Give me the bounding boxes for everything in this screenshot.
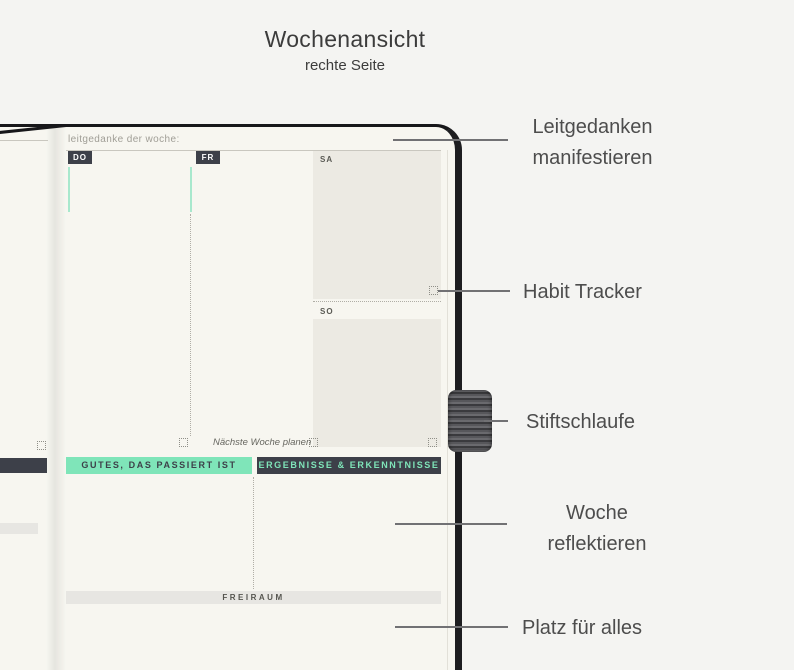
callout-label-stiftschlaufe: Stiftschlaufe: [526, 407, 635, 438]
day-badge-fr: FR: [196, 151, 220, 164]
left-page-header-line: [0, 140, 48, 141]
callout-line-woche-reflektieren: [395, 523, 507, 525]
banner-freiraum: FREIRAUM: [66, 591, 441, 604]
spine-crease: [46, 128, 66, 670]
saturday-block: [313, 151, 441, 299]
fr-column-rule: [190, 167, 192, 212]
habit-tracker-checkbox-icon: [429, 286, 438, 295]
callout-label-platz-fuer-alles: Platz für alles: [522, 613, 642, 644]
callout-label-woche-reflektieren: Woche reflektieren: [527, 498, 667, 560]
callout-line-platz-fuer-alles: [395, 626, 508, 628]
left-page-freiraum-partial: [0, 523, 38, 534]
annotated-planner-diagram: Wochenansicht rechte Seite leitgedanke d…: [0, 0, 794, 670]
fr-column-dotted-rule: [190, 214, 191, 436]
callout-label-leitgedanken: Leitgedanken manifestieren: [510, 112, 675, 174]
diagram-title-block: Wochenansicht rechte Seite: [145, 26, 545, 74]
left-page-banner-partial: [0, 458, 47, 473]
day-label-sa: SA: [320, 155, 333, 164]
leitgedanke-header-label: leitgedanke der woche:: [68, 134, 180, 145]
day-label-so: SO: [320, 307, 334, 316]
checkbox-icon: [179, 438, 188, 447]
sa-so-divider: [313, 301, 441, 302]
callout-line-leitgedanken: [393, 139, 508, 141]
sunday-block: [313, 319, 441, 447]
checkbox-icon: [37, 441, 46, 450]
banner-results-insights: ERGEBNISSE & ERKENNTNISSE: [257, 457, 441, 474]
reflection-divider: [253, 477, 254, 589]
checkbox-icon: [428, 438, 437, 447]
day-badge-do: DO: [68, 151, 92, 164]
banner-good-things: GUTES, DAS PASSIERT IST: [66, 457, 252, 474]
page-subtitle: rechte Seite: [145, 57, 545, 74]
callout-line-habit-tracker: [438, 290, 510, 292]
callout-label-habit-tracker: Habit Tracker: [523, 277, 642, 308]
do-column-rule: [68, 167, 70, 212]
callout-line-stiftschlaufe: [484, 420, 508, 422]
next-week-label: Nächste Woche planen: [213, 437, 311, 448]
page-title: Wochenansicht: [145, 26, 545, 53]
